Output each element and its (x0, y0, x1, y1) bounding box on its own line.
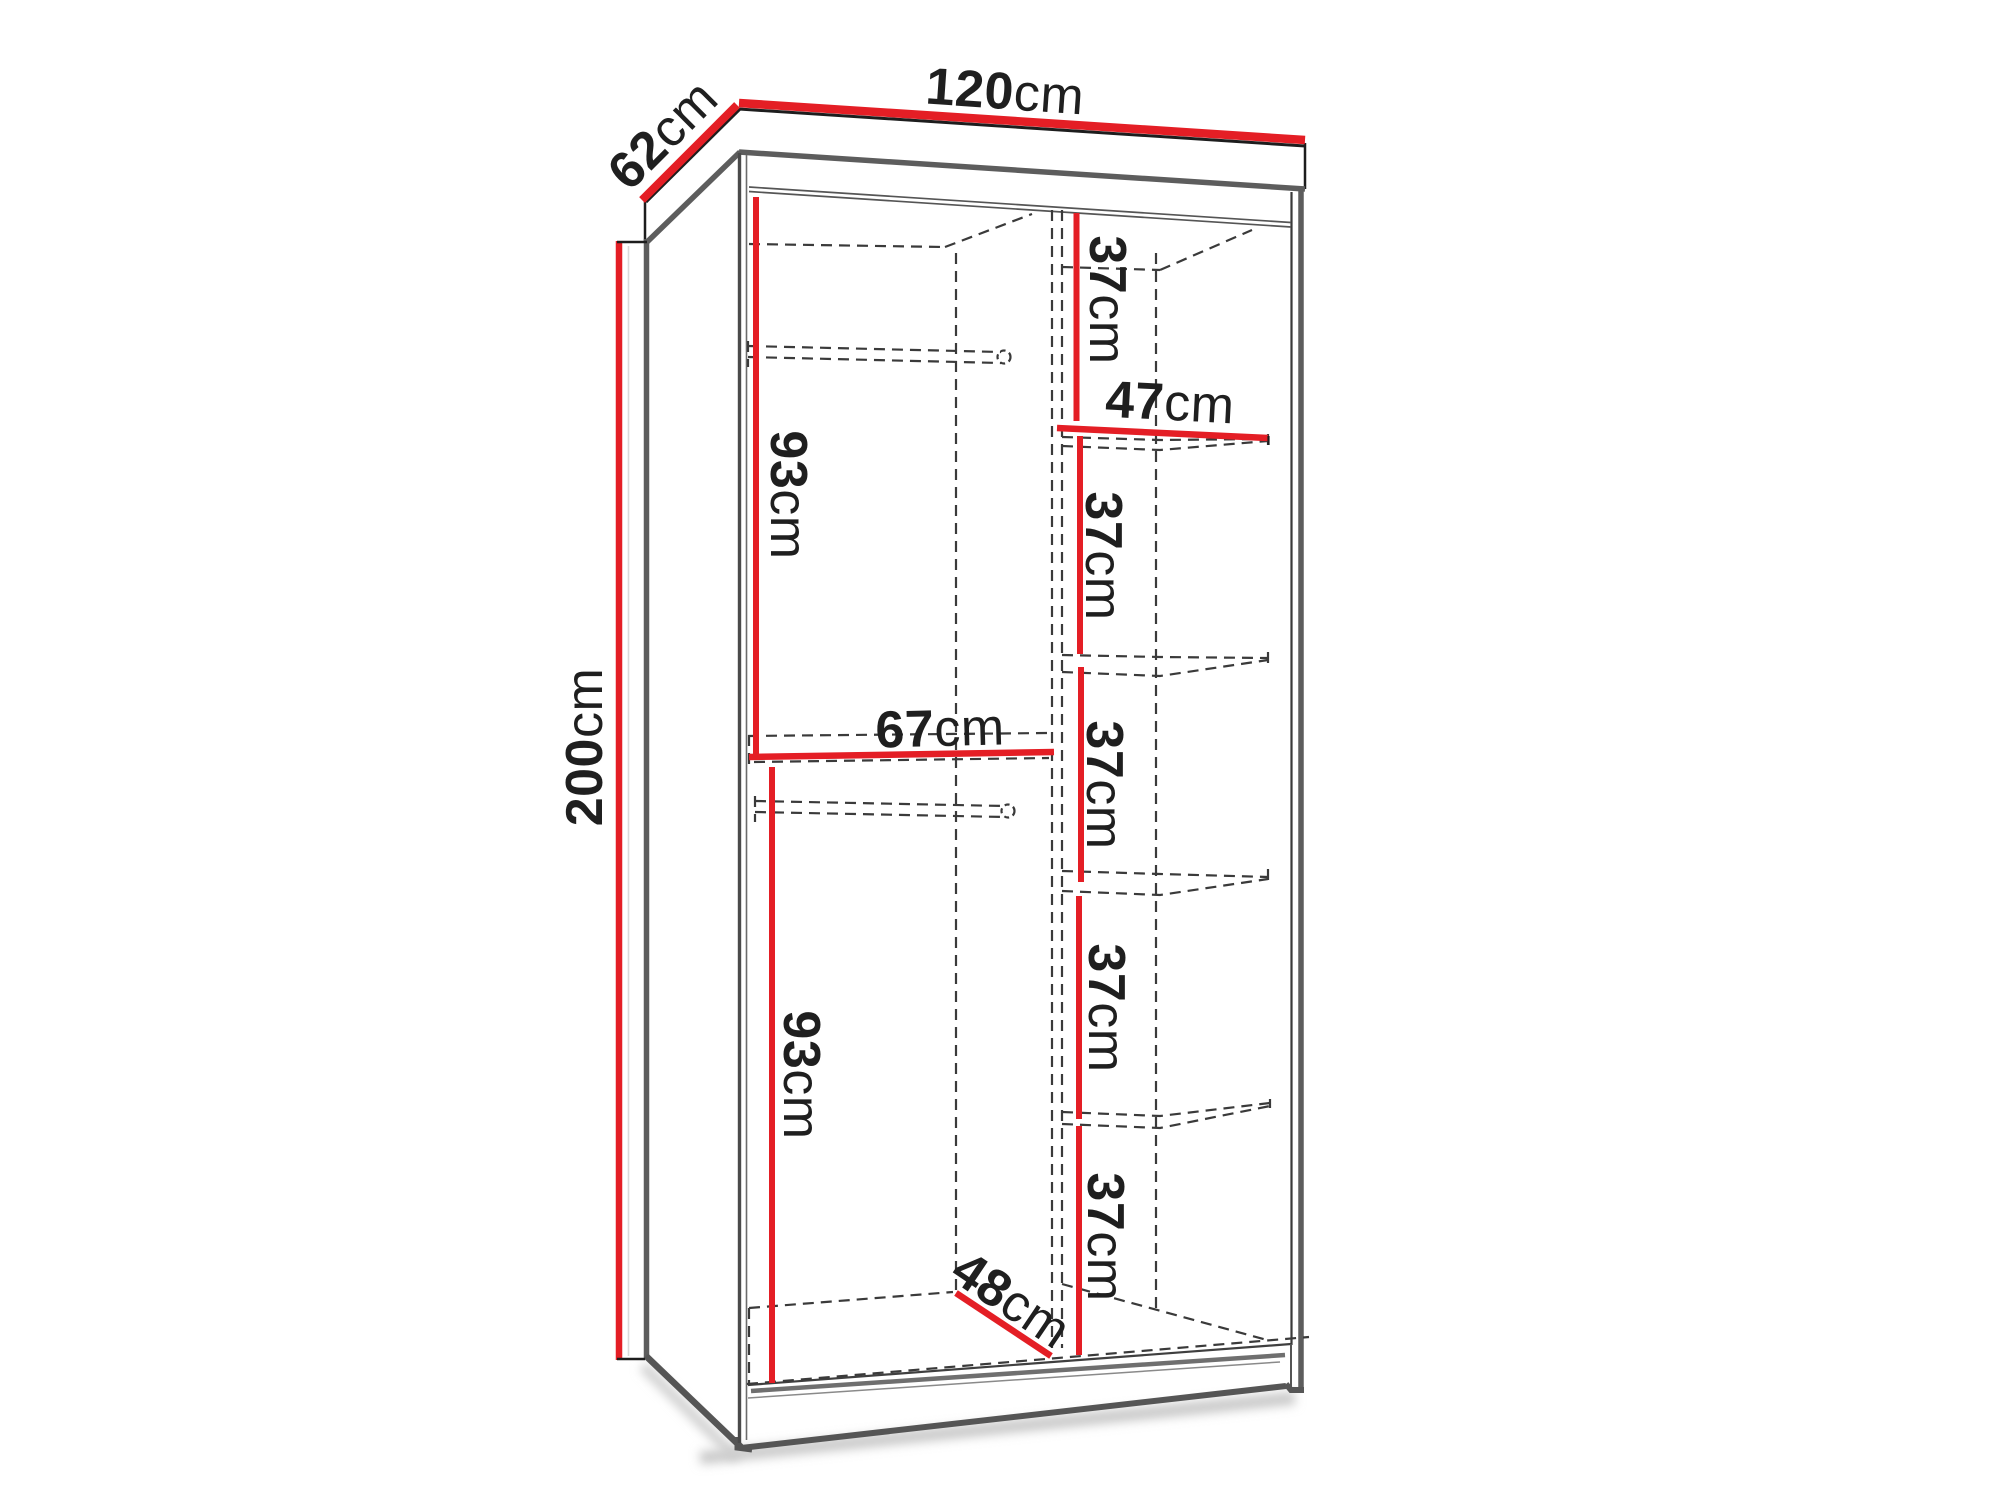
svg-text:47cm: 47cm (1104, 371, 1236, 436)
svg-text:37cm: 37cm (1077, 943, 1135, 1072)
svg-text:93cm: 93cm (772, 1010, 830, 1139)
svg-text:37cm: 37cm (1075, 720, 1133, 849)
svg-text:37cm: 37cm (1074, 491, 1132, 620)
svg-text:37cm: 37cm (1078, 235, 1136, 364)
svg-text:200cm: 200cm (556, 668, 614, 827)
svg-text:37cm: 37cm (1076, 1172, 1134, 1301)
svg-text:48cm: 48cm (941, 1240, 1081, 1360)
svg-text:67cm: 67cm (875, 698, 1006, 759)
svg-text:120cm: 120cm (924, 58, 1086, 127)
svg-text:93cm: 93cm (759, 430, 817, 559)
